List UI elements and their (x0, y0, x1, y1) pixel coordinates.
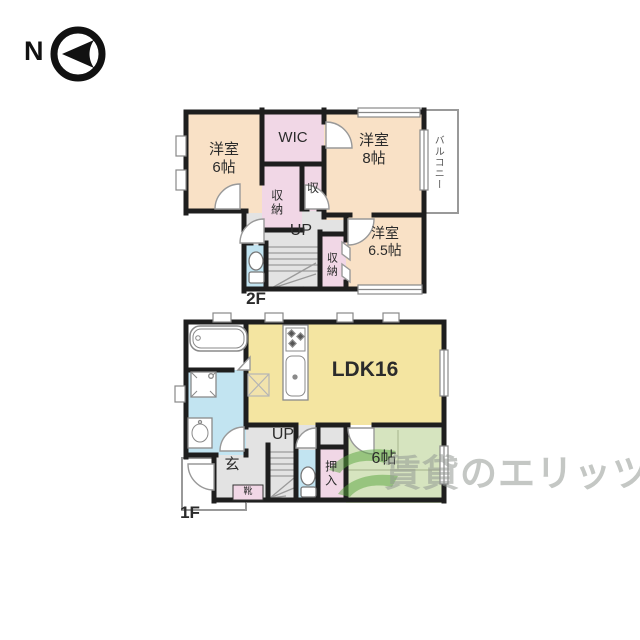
stairs-up-1f-label: UP (265, 425, 301, 445)
closet-lower-label: 収納 (324, 243, 337, 287)
room-west6-label: 洋室 6帖 (186, 141, 262, 178)
floor1-label: 1F (174, 503, 206, 524)
closet-upper-label: 収納 (269, 177, 284, 229)
balcony-label: バルコニー (431, 116, 443, 208)
stairs-up-2f-label: UP (283, 221, 319, 241)
closet-small-label: 収 (303, 181, 323, 196)
wic-label: WIC (262, 129, 324, 147)
room-west8-label: 洋室 8帖 (324, 132, 424, 169)
labels-layer: N 洋室 6帖 WIC 収納 収 洋室 8帖 バルコニー UP 収納 洋室 6.… (0, 0, 640, 640)
floorplan-canvas: N 洋室 6帖 WIC 収納 収 洋室 8帖 バルコニー UP 収納 洋室 6.… (0, 0, 640, 640)
floor2-label: 2F (240, 289, 272, 310)
watermark-text: 賃貸のエリッツ (384, 451, 640, 496)
room-west65-label: 洋室 6.5帖 (346, 225, 424, 259)
oshiire-label: 押入 (323, 451, 338, 497)
shoe-cabinet-label: 靴 (233, 484, 263, 499)
compass-n-label: N (24, 36, 44, 67)
ldk-label: LDK16 (300, 357, 430, 383)
entrance-label: 玄 (221, 456, 243, 474)
